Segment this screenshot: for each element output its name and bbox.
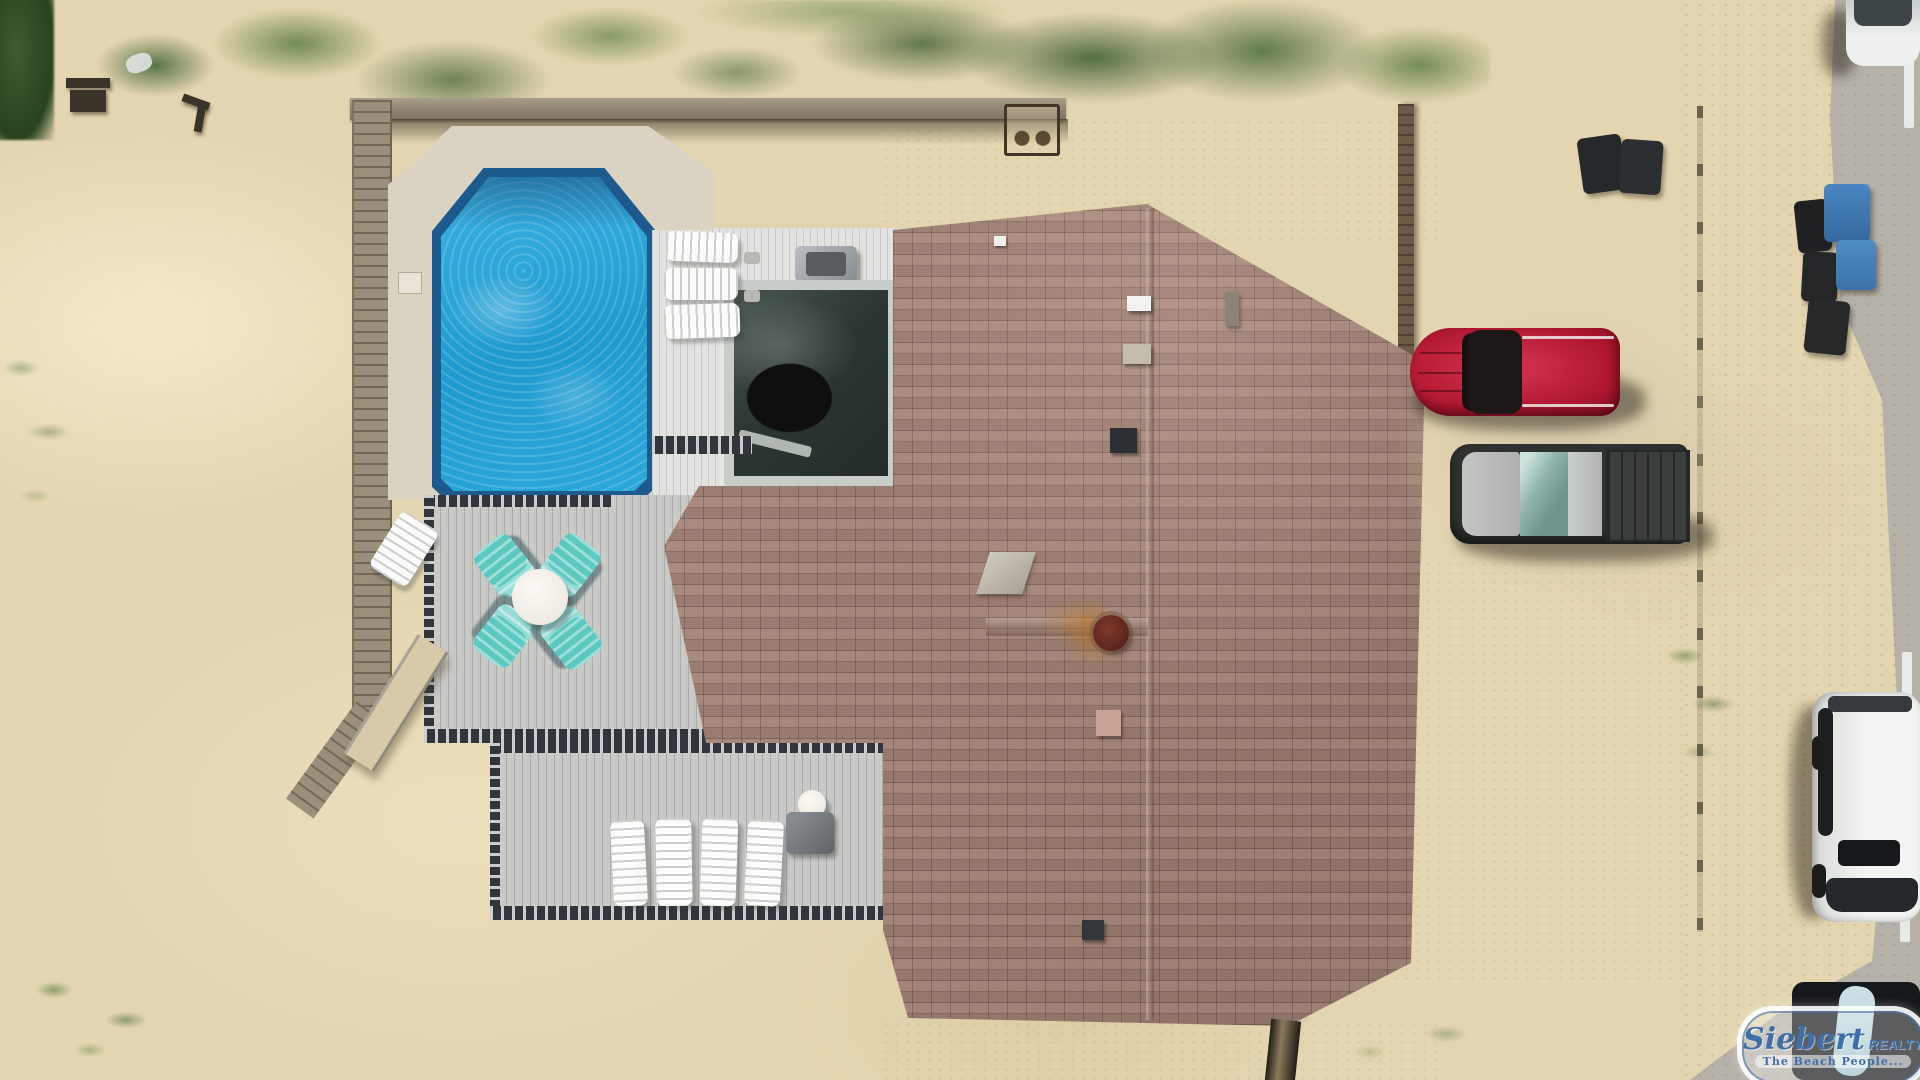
wood-bench-seat <box>70 90 106 112</box>
trash-bin-black <box>1618 139 1664 196</box>
roof-vent-lower <box>1082 920 1104 940</box>
beach-walkway-bottom <box>1265 1019 1301 1080</box>
roof-vent-small <box>994 236 1006 246</box>
watermark-tagline: The Beach People... <box>1755 1055 1912 1068</box>
swimming-pool <box>432 168 656 500</box>
iron-planter-on-fence <box>1004 104 1060 156</box>
boardwalk-left <box>352 100 392 728</box>
trash-bin-black <box>1803 298 1850 356</box>
red-suv-hood-line <box>1420 390 1462 392</box>
red-suv-hood-line <box>1418 372 1464 374</box>
truck-hood <box>1462 452 1520 536</box>
white-suv-rear-window <box>1828 696 1912 712</box>
dune-fence-top <box>350 98 1066 120</box>
side-table <box>744 290 760 302</box>
upper-deck-rail-top <box>424 495 614 507</box>
chimney-cap <box>1093 615 1129 651</box>
roof-vent-gray <box>1123 344 1151 364</box>
red-suv-roof-dark <box>1468 330 1522 414</box>
round-deck-table <box>512 569 568 625</box>
grill-hood <box>806 252 846 276</box>
lower-deck-rail-top <box>490 743 885 753</box>
pool-steps-shadow <box>441 177 647 229</box>
upper-deck-rail-bottom <box>424 729 710 743</box>
red-suv-hood-line <box>1420 352 1462 354</box>
siebert-realty-watermark: Siebert REALTY The Beach People... <box>1737 1006 1920 1080</box>
white-car-windshield <box>1854 0 1912 26</box>
pool-lounger <box>665 231 738 263</box>
side-table <box>744 252 760 264</box>
truck-windshield <box>1520 452 1568 536</box>
recycling-bin-blue <box>1824 184 1870 242</box>
pickup-truck <box>1450 444 1688 544</box>
pool-lounger <box>664 268 738 300</box>
roof-hatch <box>1096 710 1121 736</box>
white-suv-wheel <box>1812 736 1826 770</box>
truck-bed <box>1606 450 1690 542</box>
wood-bench <box>66 78 110 88</box>
recycling-bin-blue <box>1836 240 1876 290</box>
white-car-top-right <box>1846 0 1920 66</box>
watermark-realty-text: REALTY <box>1868 1037 1920 1052</box>
roof-vent-dark <box>1110 428 1137 453</box>
grass-left-edge <box>0 240 70 560</box>
white-suv <box>1812 692 1920 922</box>
white-suv-sunroof <box>1838 840 1900 866</box>
pool-equipment-box <box>398 272 422 294</box>
white-suv-wheel <box>1812 864 1826 898</box>
deck-stair-railing <box>652 436 752 454</box>
deck-grill <box>786 812 834 854</box>
white-lounge-chair <box>655 818 693 907</box>
red-suv-roof-rail <box>1522 404 1614 407</box>
grass-bottom-left <box>0 930 180 1080</box>
white-suv-windshield <box>1826 878 1918 912</box>
white-suv-side-windows <box>1818 708 1833 836</box>
lower-deck-rail-bottom <box>490 906 885 920</box>
bush-top-left <box>0 0 54 140</box>
red-suv-roof-rail <box>1522 336 1614 339</box>
truck-cab-roof <box>1568 452 1602 536</box>
watermark-brand-text: Siebert <box>1743 1026 1865 1054</box>
white-lounge-chair <box>610 819 648 907</box>
white-lounge-chair <box>699 817 738 906</box>
roof-ridge-vertical <box>1146 208 1154 1020</box>
pool-lounger <box>663 303 740 340</box>
aerial-photo-stage: Siebert REALTY The Beach People... <box>0 0 1920 1080</box>
roof-vent-white <box>1127 296 1151 311</box>
watermark-brand-row: Siebert REALTY <box>1743 1026 1920 1054</box>
white-lounge-chair <box>744 819 784 907</box>
trampled-sand-right <box>1390 560 1690 980</box>
red-suv <box>1410 328 1620 416</box>
lower-deck-rail-left <box>490 743 500 920</box>
roof-vent-ridge <box>1225 292 1239 326</box>
hot-tub-enclosure <box>724 280 898 486</box>
trash-bin-black <box>1801 251 1840 303</box>
